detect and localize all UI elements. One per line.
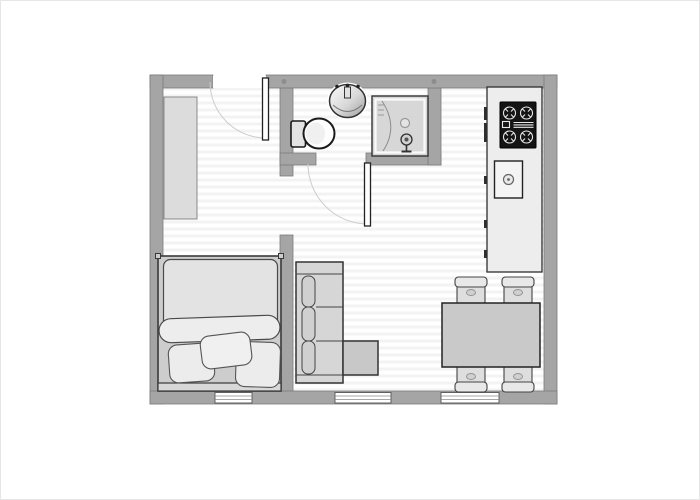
faucet-handle-dot (335, 85, 339, 89)
sofa-chaise (343, 341, 378, 375)
faucet-handle-dot (346, 84, 350, 88)
cabinet-handle (484, 107, 488, 120)
wall-right (544, 75, 557, 404)
window (441, 393, 499, 404)
shower-cabin (372, 96, 428, 156)
stove-cooktop (500, 102, 536, 148)
window (215, 393, 252, 404)
floor-plan-canvas (0, 0, 700, 500)
toilet-bowl-shade (306, 123, 325, 145)
chair (502, 366, 534, 392)
sofa-back-cushion (302, 341, 315, 374)
chair-backrest (502, 277, 534, 287)
cabinet-handle (484, 176, 488, 184)
cabinet-handle (484, 250, 488, 258)
dining-table (442, 303, 540, 367)
sofa-back-cushion (302, 307, 315, 341)
entry-opening (213, 76, 266, 89)
double-bed (156, 254, 284, 392)
bathroom-wall-right (428, 88, 441, 165)
faucet-icon (345, 87, 351, 98)
kitchen (484, 87, 542, 272)
sofa-back-cushion (302, 276, 315, 307)
cabinet-handle (484, 123, 488, 142)
chair-backrest (455, 382, 487, 392)
bed-pillow (199, 331, 253, 370)
door-leaf (263, 78, 269, 140)
chair-backrest (502, 382, 534, 392)
floor-plan-screenshot (0, 0, 700, 500)
door-leaf (365, 163, 371, 226)
wardrobe (164, 97, 197, 219)
shower-drain-icon (401, 119, 410, 128)
wall-junction-dot (432, 79, 437, 84)
wall-junction-dot (282, 79, 287, 84)
kitchen-sink (495, 161, 523, 198)
bed-corner-bracket (156, 254, 161, 259)
bed-corner-bracket (279, 254, 284, 259)
faucet-handle-dot (356, 85, 360, 89)
chair-seat-dot (514, 374, 523, 380)
cabinet-handle (484, 220, 488, 228)
wall-top-right (266, 75, 557, 88)
chair (455, 277, 487, 304)
window (335, 393, 391, 404)
chair-backrest (455, 277, 487, 287)
chair-seat-dot (467, 290, 476, 296)
toilet (291, 119, 335, 149)
washbasin (327, 83, 368, 120)
bathroom-wall-bottom-left (280, 153, 316, 165)
chair-seat-dot (467, 374, 476, 380)
chair-seat-dot (514, 290, 523, 296)
chair (455, 366, 487, 392)
sink-drain-dot (507, 178, 510, 181)
chair (502, 277, 534, 304)
